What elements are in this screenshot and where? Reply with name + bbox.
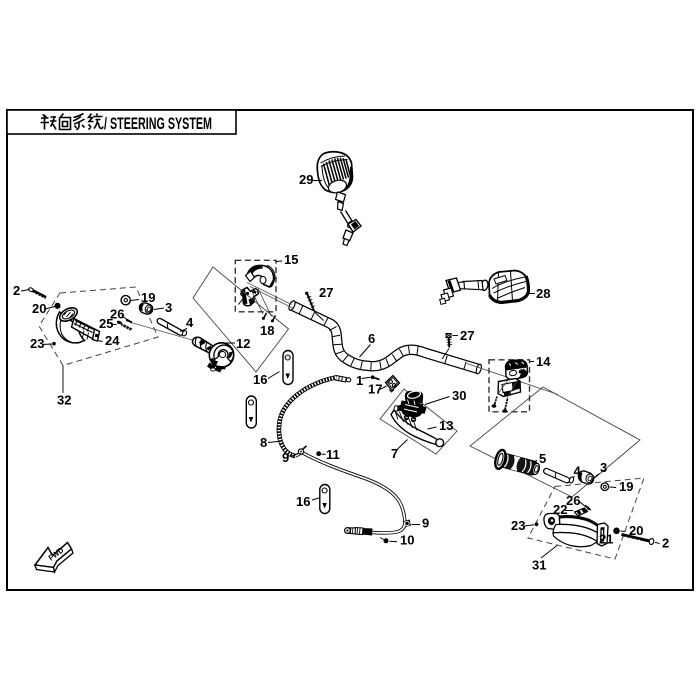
svg-text:21: 21 (599, 532, 613, 547)
svg-text:1: 1 (356, 373, 363, 388)
svg-text:12: 12 (236, 336, 250, 351)
svg-text:26: 26 (566, 493, 580, 508)
svg-text:28: 28 (536, 286, 550, 301)
svg-text:9: 9 (282, 450, 289, 465)
svg-text:7: 7 (391, 446, 398, 461)
svg-text:27: 27 (460, 328, 474, 343)
svg-text:29: 29 (299, 172, 313, 187)
svg-text:4: 4 (186, 315, 194, 330)
svg-text:16: 16 (253, 372, 267, 387)
svg-text:5: 5 (539, 451, 546, 466)
svg-text:18: 18 (260, 323, 274, 338)
svg-text:/ STEERING SYSTEM: / STEERING SYSTEM (104, 114, 212, 133)
svg-text:32: 32 (57, 393, 71, 408)
svg-text:3: 3 (165, 300, 172, 315)
svg-text:9: 9 (422, 516, 429, 531)
svg-text:8: 8 (260, 435, 267, 450)
svg-text:13: 13 (439, 418, 453, 433)
svg-text:15: 15 (284, 252, 298, 267)
svg-text:19: 19 (619, 479, 633, 494)
svg-text:26: 26 (110, 307, 124, 322)
svg-text:10: 10 (400, 533, 414, 548)
svg-text:14: 14 (536, 354, 551, 369)
svg-text:16: 16 (296, 494, 310, 509)
svg-text:24: 24 (105, 333, 120, 348)
svg-text:2: 2 (662, 536, 669, 551)
svg-text:27: 27 (319, 285, 333, 300)
svg-text:6: 6 (368, 331, 375, 346)
svg-text:2: 2 (13, 283, 20, 298)
svg-text:30: 30 (452, 388, 466, 403)
svg-text:20: 20 (32, 301, 46, 316)
svg-text:11: 11 (326, 447, 340, 462)
svg-text:31: 31 (532, 558, 546, 573)
svg-text:23: 23 (30, 336, 44, 351)
svg-text:23: 23 (511, 518, 525, 533)
svg-text:3: 3 (600, 460, 607, 475)
